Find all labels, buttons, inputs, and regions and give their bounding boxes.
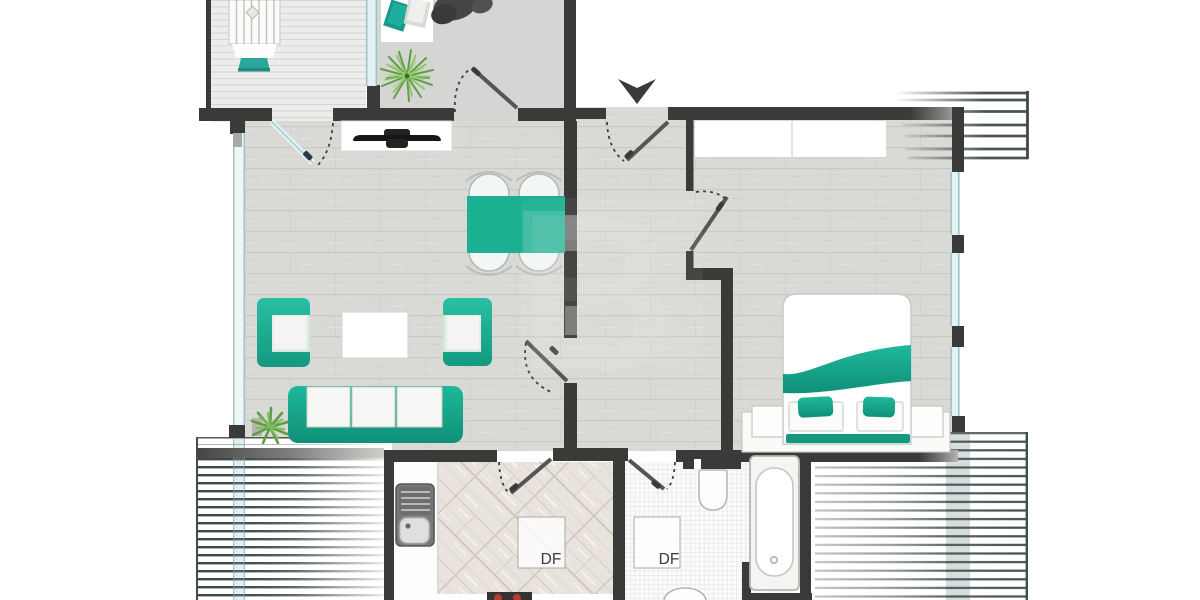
svg-text:DF: DF bbox=[659, 551, 680, 568]
svg-text:DF: DF bbox=[541, 551, 562, 568]
svg-text:B: B bbox=[518, 169, 677, 415]
